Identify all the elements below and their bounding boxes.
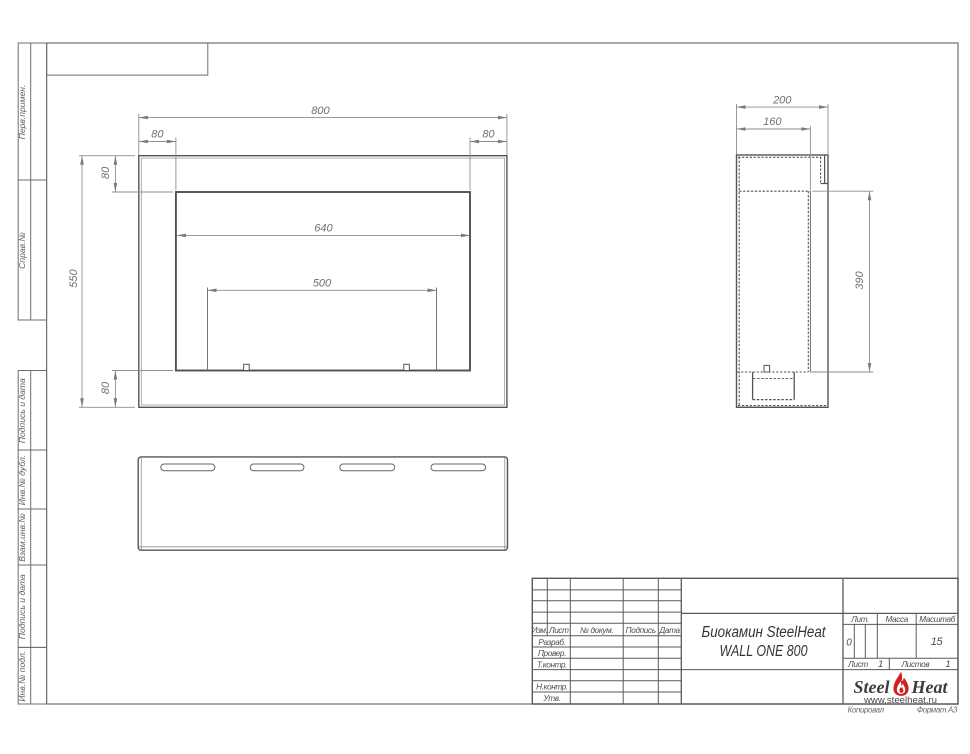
- svg-text:15: 15: [931, 636, 944, 648]
- svg-text:Т.контр.: Т.контр.: [537, 660, 567, 669]
- svg-text:Провер.: Провер.: [538, 649, 566, 658]
- svg-text:1: 1: [945, 659, 950, 670]
- svg-text:Инв.№ дубл.: Инв.№ дубл.: [17, 455, 27, 505]
- svg-text:Подпись и дата: Подпись и дата: [17, 574, 27, 639]
- svg-text:0: 0: [846, 637, 852, 648]
- svg-text:Лит.: Лит.: [850, 615, 869, 624]
- svg-text:80: 80: [100, 381, 112, 394]
- svg-text:Масса: Масса: [885, 615, 908, 624]
- svg-text:Формат А3: Формат А3: [917, 705, 958, 714]
- svg-text:800: 800: [311, 105, 330, 117]
- svg-text:Дата: Дата: [658, 626, 680, 635]
- svg-text:Биокамин SteelHeat: Биокамин SteelHeat: [702, 624, 827, 641]
- svg-text:80: 80: [151, 129, 164, 141]
- svg-text:Справ.№: Справ.№: [17, 232, 27, 269]
- svg-text:www.steelheat.ru: www.steelheat.ru: [863, 695, 937, 706]
- svg-text:390: 390: [854, 270, 866, 289]
- svg-text:80: 80: [482, 129, 495, 141]
- svg-text:Копировал: Копировал: [848, 705, 885, 714]
- svg-text:Инв.№ подл.: Инв.№ подл.: [17, 651, 27, 702]
- svg-text:Перв.примен.: Перв.примен.: [17, 85, 27, 140]
- svg-text:160: 160: [763, 116, 782, 128]
- svg-text:Лист: Лист: [548, 626, 569, 635]
- svg-text:200: 200: [772, 94, 792, 106]
- svg-text:Утв.: Утв.: [542, 694, 560, 703]
- svg-text:Изм.: Изм.: [532, 626, 548, 635]
- svg-text:Лист: Лист: [847, 660, 868, 669]
- svg-text:500: 500: [313, 278, 332, 290]
- svg-text:1: 1: [878, 659, 883, 670]
- svg-text:Листов: Листов: [901, 660, 931, 669]
- svg-text:WALL ONE 800: WALL ONE 800: [720, 643, 808, 660]
- svg-text:Подпись и дата: Подпись и дата: [17, 378, 27, 443]
- svg-text:Разраб.: Разраб.: [538, 638, 565, 647]
- svg-text:Масштаб: Масштаб: [919, 615, 956, 624]
- svg-text:Подпись: Подпись: [626, 626, 656, 635]
- svg-text:№ докум.: № докум.: [580, 626, 613, 635]
- svg-text:Н.контр.: Н.контр.: [536, 683, 568, 692]
- svg-text:550: 550: [68, 268, 80, 287]
- svg-text:Взам.инв.№: Взам.инв.№: [17, 513, 27, 561]
- svg-text:640: 640: [314, 223, 333, 235]
- svg-text:80: 80: [100, 166, 112, 179]
